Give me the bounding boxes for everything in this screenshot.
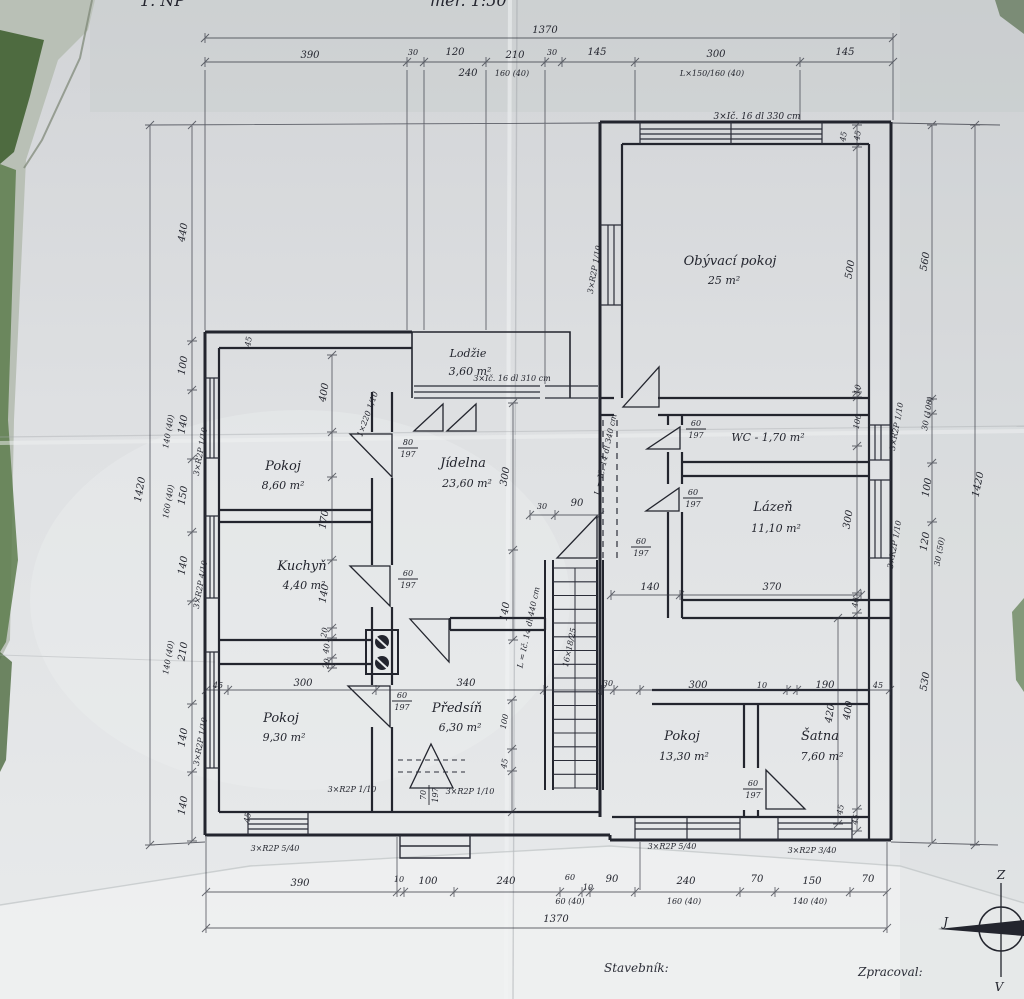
room-name: Lodžie: [449, 347, 487, 360]
title-right: měř. 1:50: [430, 0, 507, 10]
door-width: 70: [419, 790, 428, 800]
door-height: 197: [394, 703, 410, 712]
room-area: 3,60 m²: [449, 365, 492, 378]
dimension-label: 70: [751, 874, 764, 885]
compass-z-label: Z: [996, 868, 1006, 882]
room-area: 13,30 m²: [659, 750, 709, 763]
dimension-label: 150: [802, 876, 822, 887]
dimension-label: 160 (40): [667, 897, 701, 906]
room-name: WC - 1,70 m²: [731, 431, 804, 444]
dimension-label: 190: [815, 680, 835, 691]
dimension-label: 30: [537, 502, 547, 511]
dimension-label: 10: [852, 384, 863, 396]
door-width: 60: [636, 537, 646, 546]
room-area: 7,60 m²: [801, 750, 844, 763]
door-height: 197: [400, 450, 416, 459]
dimension-label: 300: [293, 678, 313, 689]
dimension-label: 160 (40): [495, 69, 529, 78]
dimension-label: 45: [499, 758, 510, 771]
dimension-label: 390: [290, 878, 310, 889]
door-height: 197: [431, 786, 440, 802]
door-width: 60: [403, 569, 413, 578]
paper-sheet: [0, 0, 1024, 999]
dimension-label: 60 (40): [555, 897, 584, 906]
dimension-label: 240: [675, 876, 696, 887]
dimension-label: 45: [850, 814, 861, 827]
dimension-label: 300: [688, 680, 708, 691]
door-width: 60: [688, 488, 698, 497]
door-width: 60: [397, 691, 407, 700]
room-area: 8,60 m²: [262, 479, 305, 492]
room-area: 6,30 m²: [439, 721, 482, 734]
dimension-label: 70: [862, 874, 875, 885]
room-name: Pokoj: [264, 459, 301, 474]
door-height: 197: [400, 581, 416, 590]
annotation-label: 3×R2P 5/40: [648, 842, 697, 851]
dimension-label: L×150/160 (40): [679, 69, 744, 78]
dimension-label: 40: [321, 643, 332, 656]
door-width: 80: [403, 438, 413, 447]
door-height: 197: [688, 431, 704, 440]
dimension-label: 45: [852, 130, 863, 143]
dimension-label: 90: [571, 498, 584, 509]
dimension-label: 45: [212, 681, 223, 690]
door-height: 197: [685, 500, 701, 509]
title-left: 1. NP: [140, 0, 185, 10]
dimension-label: 45: [838, 131, 849, 144]
dimension-label: 45: [242, 812, 253, 825]
annotation-label: 3×R2P 1/10: [446, 787, 495, 796]
room-name: Předsíň: [431, 701, 482, 716]
dimension-label: 45: [835, 804, 846, 817]
room-name: Jídelna: [437, 456, 486, 471]
dimension-label: 340: [456, 678, 476, 689]
compass-v-label: V: [995, 980, 1005, 994]
stavebnik-label: Stavebník:: [604, 961, 669, 975]
dimension-label: 145: [835, 47, 854, 58]
dimension-label: 40: [850, 597, 861, 610]
dimension-label: 240: [495, 876, 516, 887]
annotation-label: 3×Ič. 16 dl 330 cm: [713, 111, 800, 122]
dimension-label: 30: [547, 48, 557, 57]
room-name: Lázeň: [752, 500, 792, 515]
dimension-label: 10: [394, 875, 404, 884]
dimension-label: 20: [319, 627, 330, 640]
zpracoval-label: Zpracoval:: [857, 965, 923, 979]
dimension-label: 10: [583, 883, 593, 892]
room-name: Pokoj: [262, 711, 299, 726]
dimension-label: 1370: [543, 914, 569, 925]
dimension-label: 370: [762, 582, 782, 593]
room-name: Šatna: [801, 727, 839, 744]
dimension-label: 390: [300, 50, 320, 61]
room-area: 9,30 m²: [263, 731, 306, 744]
dimension-label: 300: [706, 49, 726, 60]
annotation-label: 3×R2P 1/10: [328, 785, 377, 794]
dimension-label: 100: [418, 876, 438, 887]
annotation-label: 3×R2P 3/40: [788, 846, 837, 855]
floorplan-photo: 137039030120240210160 (40)30145300L×150/…: [0, 0, 1024, 999]
door-width: 60: [691, 419, 701, 428]
dimension-label: 1370: [532, 25, 558, 36]
dimension-label: 140: [640, 582, 660, 593]
dimension-label: 120: [445, 47, 465, 58]
dimension-label: 140 (40): [793, 897, 827, 906]
room-area: 23,60 m²: [441, 477, 492, 490]
room-area: 4,40 m²: [282, 579, 326, 592]
dimension-label: 30: [408, 48, 418, 57]
room-area: 11,10 m²: [751, 522, 801, 535]
dimension-label: 30: [603, 679, 613, 688]
dimension-label: 210: [504, 50, 525, 61]
dimension-label: 20: [321, 658, 332, 671]
room-name: Obývací pokoj: [684, 254, 777, 269]
door-height: 197: [745, 791, 761, 800]
room-area: 25 m²: [707, 274, 740, 287]
dimension-label: 45: [872, 681, 883, 690]
dimension-label: 145: [587, 47, 606, 58]
dimension-label: 90: [606, 874, 619, 885]
room-name: Pokoj: [663, 729, 700, 744]
dimension-label: 45: [243, 336, 254, 349]
dimension-label: 10: [757, 681, 767, 690]
annotation-label: 3×R2P 5/40: [251, 844, 300, 853]
room-name: Kuchyň: [276, 559, 326, 574]
door-width: 60: [748, 779, 758, 788]
dimension-label: 240: [457, 68, 478, 79]
door-height: 197: [633, 549, 649, 558]
dimension-label: 60: [565, 873, 575, 882]
